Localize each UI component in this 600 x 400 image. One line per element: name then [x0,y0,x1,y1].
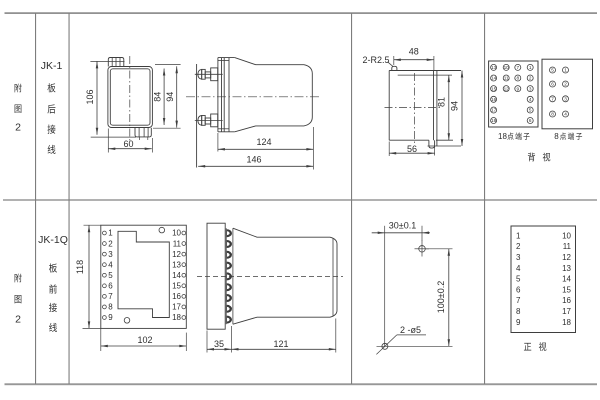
svg-text:13: 13 [562,264,571,273]
svg-text:2: 2 [15,314,21,326]
svg-text:14: 14 [562,275,571,284]
svg-text:2: 2 [108,239,113,248]
svg-text:6: 6 [551,82,554,87]
svg-text:1: 1 [529,65,532,70]
svg-text:13: 13 [172,260,181,269]
svg-text:18: 18 [491,118,497,123]
svg-text:2: 2 [564,82,567,87]
svg-text:8: 8 [108,303,113,312]
svg-text:118: 118 [75,260,85,274]
svg-text:10: 10 [172,229,181,238]
svg-text:16: 16 [562,296,571,305]
svg-text:18: 18 [172,313,181,322]
svg-text:56: 56 [407,144,417,154]
svg-text:9: 9 [108,313,113,322]
svg-text:1: 1 [516,231,521,240]
svg-text:81: 81 [437,97,447,107]
svg-text:2: 2 [529,76,532,81]
svg-text:35: 35 [214,339,224,349]
svg-text:94: 94 [450,101,460,111]
svg-text:16: 16 [172,292,181,301]
svg-text:2: 2 [516,242,521,251]
svg-text:106: 106 [85,89,95,104]
svg-text:11: 11 [504,76,509,81]
svg-text:8: 8 [554,132,559,141]
svg-text:5: 5 [108,271,113,280]
svg-text:17: 17 [172,303,181,312]
svg-text:1: 1 [564,68,567,73]
svg-text:6: 6 [108,282,113,291]
svg-text:2 -ø5: 2 -ø5 [400,325,421,335]
svg-text:94: 94 [165,92,175,102]
svg-text:4: 4 [529,97,532,102]
svg-text:2: 2 [15,122,21,134]
svg-text:JK-1: JK-1 [41,60,63,72]
svg-text:5: 5 [529,108,532,113]
svg-text:60: 60 [123,139,133,149]
svg-text:13: 13 [491,65,497,70]
svg-text:9: 9 [516,318,521,327]
svg-text:17: 17 [562,307,571,316]
svg-text:48: 48 [409,47,419,57]
svg-text:5: 5 [516,275,521,284]
svg-text:9: 9 [516,86,519,91]
svg-text:8: 8 [551,112,554,117]
svg-text:30±0.1: 30±0.1 [389,220,416,230]
svg-text:7: 7 [516,296,521,305]
svg-text:7: 7 [108,292,113,301]
svg-text:6: 6 [529,118,532,123]
svg-text:8: 8 [516,307,521,316]
svg-text:146: 146 [246,154,261,164]
svg-text:7: 7 [516,65,519,70]
svg-text:3: 3 [529,86,532,91]
svg-text:18: 18 [562,318,571,327]
svg-text:4: 4 [564,112,567,117]
svg-text:7: 7 [551,97,554,102]
svg-text:11: 11 [563,242,572,251]
svg-text:102: 102 [137,335,152,345]
svg-text:14: 14 [491,76,497,81]
svg-text:10: 10 [562,231,571,240]
svg-text:5: 5 [551,68,554,73]
svg-text:3: 3 [108,250,113,259]
svg-text:11: 11 [173,239,182,248]
svg-text:84: 84 [153,92,163,102]
svg-text:12: 12 [172,250,181,259]
svg-text:12: 12 [504,86,510,91]
svg-text:121: 121 [273,339,288,349]
svg-text:15: 15 [562,285,571,294]
svg-text:15: 15 [172,282,181,291]
svg-text:6: 6 [516,285,521,294]
svg-text:3: 3 [516,253,521,262]
svg-text:12: 12 [562,253,571,262]
svg-text:15: 15 [491,86,497,91]
svg-text:18: 18 [498,132,507,141]
svg-text:16: 16 [491,97,497,102]
svg-text:17: 17 [491,108,497,113]
svg-text:100±0.2: 100±0.2 [436,281,446,313]
svg-text:124: 124 [256,137,271,147]
svg-text:JK-1Q: JK-1Q [38,234,68,246]
svg-text:4: 4 [516,264,521,273]
svg-text:10: 10 [504,65,510,70]
svg-text:4: 4 [108,260,113,269]
svg-text:14: 14 [172,271,181,280]
svg-text:2-R2.5: 2-R2.5 [362,55,389,65]
svg-text:1: 1 [108,229,113,238]
svg-text:8: 8 [516,76,519,81]
svg-text:3: 3 [564,97,567,102]
